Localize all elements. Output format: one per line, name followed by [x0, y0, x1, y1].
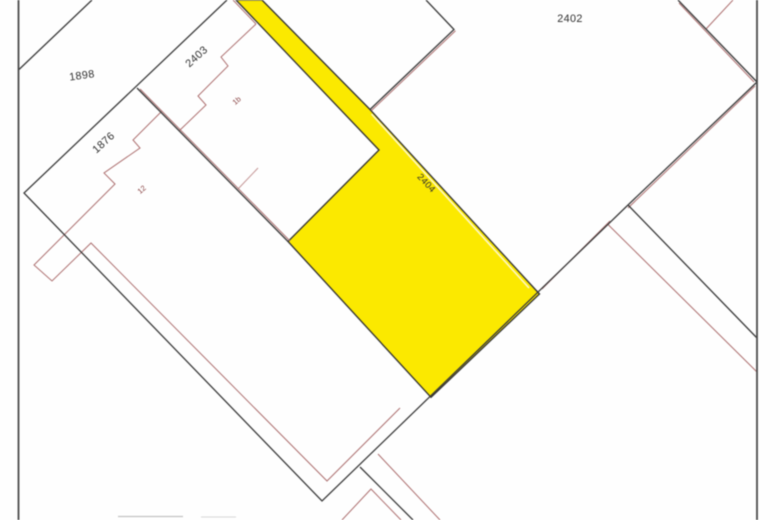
- svg-text:1b: 1b: [231, 94, 243, 106]
- svg-text:1876: 1876: [90, 130, 117, 156]
- svg-text:1898: 1898: [68, 68, 95, 83]
- svg-text:2403: 2403: [183, 44, 210, 70]
- svg-text:12: 12: [136, 183, 148, 195]
- svg-text:2402: 2402: [557, 13, 583, 25]
